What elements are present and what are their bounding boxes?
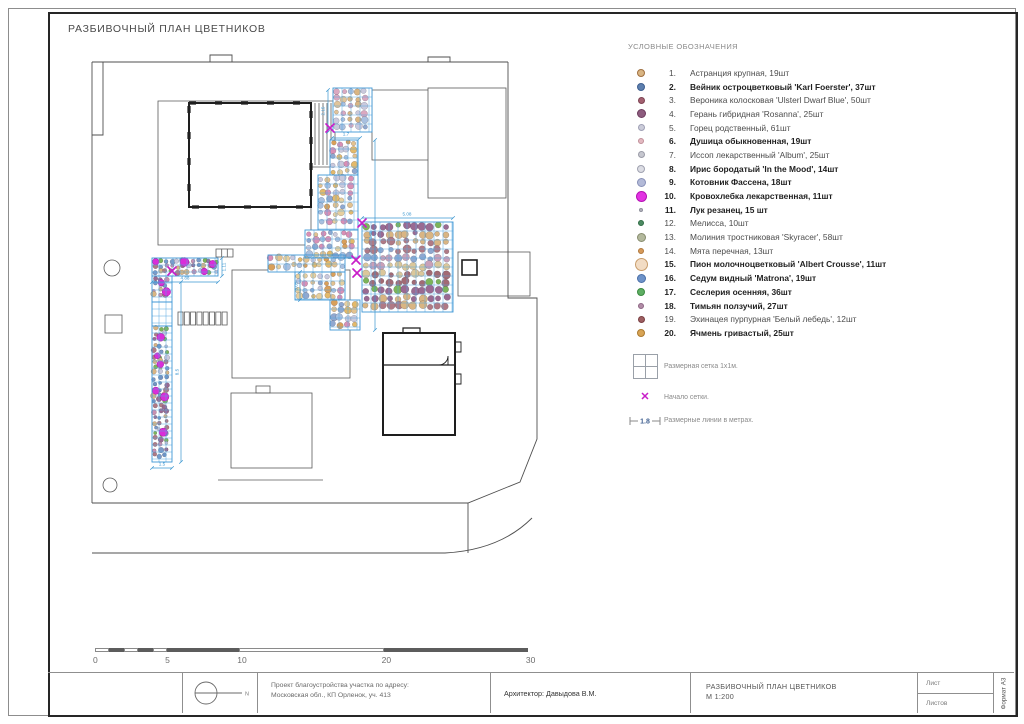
legend-item-label: Вероника колосковая 'Ulsterl Dwarf Blue'… — [686, 95, 1020, 105]
legend-items: 1. Астранция крупная, 19шт 2. Вейник ост… — [628, 66, 1020, 340]
page-title: РАЗБИВОЧНЫЙ ПЛАН ЦВЕТНИКОВ — [68, 23, 266, 35]
legend-item-number: 7. — [654, 150, 686, 160]
legend-item-number: 16. — [654, 273, 686, 283]
legend-header: УСЛОВНЫЕ ОБОЗНАЧЕНИЯ — [628, 42, 1020, 51]
plant-swatch — [628, 258, 654, 271]
scale-segment — [95, 648, 109, 652]
scale-segment — [138, 648, 152, 652]
legend-item: 8. Ирис бородатый 'In the Mood', 14шт — [628, 162, 1020, 176]
plant-swatch — [628, 248, 654, 254]
legend-item: 15. Пион молочноцветковый 'Albert Crouss… — [628, 258, 1020, 272]
legend-item-number: 3. — [654, 95, 686, 105]
legend-item-number: 11. — [654, 205, 686, 215]
scale-tick-label: 0 — [93, 655, 98, 665]
format-label: Формат А3 — [993, 673, 1014, 713]
scale-segment — [124, 648, 138, 652]
legend-item-label: Иссоп лекарственный 'Album', 25шт — [686, 150, 1020, 160]
plant-swatch — [628, 208, 654, 212]
origin-symbol-label: Начало сетки. — [664, 394, 709, 401]
svg-text:3.05: 3.05 — [294, 281, 299, 290]
svg-text:4.88: 4.88 — [181, 276, 190, 281]
legend-item-number: 13. — [654, 232, 686, 242]
scale-segment — [384, 648, 528, 652]
project-line2: Московская обл., КП Орленок, уч. 413 — [271, 691, 490, 701]
svg-text:8.5: 8.5 — [175, 368, 180, 375]
legend-item: 2. Вейник остроцветковый 'Karl Foerster'… — [628, 80, 1020, 94]
scale-tick-label: 5 — [165, 655, 170, 665]
plant-swatch — [628, 274, 654, 283]
scale-segment — [167, 648, 239, 652]
plant-swatch — [628, 138, 654, 144]
plant-swatch — [628, 303, 654, 309]
north-arrow: N — [182, 673, 257, 713]
legend-item-number: 9. — [654, 177, 686, 187]
legend-item-label: Лук резанец, 15 шт — [686, 205, 1020, 215]
dimension-symbol-label: Размерные линии в метрах. — [664, 417, 754, 424]
legend-item-number: 4. — [654, 109, 686, 119]
legend-item-number: 6. — [654, 136, 686, 146]
legend-item-number: 5. — [654, 123, 686, 133]
scale-segment — [239, 648, 383, 652]
grid-symbol-label: Размерная сетка 1х1м. — [664, 363, 738, 370]
plant-swatch — [628, 83, 654, 91]
svg-text:2.15: 2.15 — [321, 106, 326, 115]
plant-swatch — [628, 191, 654, 202]
plant-swatch — [628, 124, 654, 131]
architect: Архитектор: Давыдова В.М. — [490, 673, 690, 713]
sheet-scale: М 1:200 — [706, 692, 917, 702]
legend: УСЛОВНЫЕ ОБОЗНАЧЕНИЯ 1. Астранция крупна… — [628, 42, 1020, 439]
legend-item-label: Мелисса, 10шт — [686, 218, 1020, 228]
legend-item: 17. Сеслерия осенняя, 36шт — [628, 285, 1020, 299]
legend-item-label: Котовник Фассена, 18шт — [686, 177, 1020, 187]
plant-swatch — [628, 69, 654, 77]
legend-item: 3. Вероника колосковая 'Ulsterl Dwarf Bl… — [628, 93, 1020, 107]
legend-item: 20. Ячмень гривастый, 25шт — [628, 326, 1020, 340]
legend-item: 14. Мята перечная, 13шт — [628, 244, 1020, 258]
scale-segment — [109, 648, 123, 652]
dimension-line-icon: 1.8 — [628, 414, 662, 428]
scale-segment — [153, 648, 167, 652]
legend-item: 18. Тимьян ползучий, 27шт — [628, 299, 1020, 313]
legend-item-label: Седум видный 'Matrona', 19шт — [686, 273, 1020, 283]
legend-item-number: 8. — [654, 164, 686, 174]
flower-beds — [150, 88, 453, 462]
legend-item-number: 14. — [654, 246, 686, 256]
legend-item: 1. Астранция крупная, 19шт — [628, 66, 1020, 80]
svg-text:8.06: 8.06 — [368, 230, 373, 239]
plant-swatch — [628, 109, 654, 118]
legend-item-label: Кровохлебка лекарственная, 11шт — [686, 191, 1020, 201]
legend-item-label: Ячмень гривастый, 25шт — [686, 328, 1020, 338]
plant-swatch — [628, 288, 654, 296]
legend-item: 7. Иссоп лекарственный 'Album', 25шт — [628, 148, 1020, 162]
legend-item-number: 12. — [654, 218, 686, 228]
legend-item-label: Горец родственный, 61шт — [686, 123, 1020, 133]
svg-text:5.08: 5.08 — [403, 212, 412, 217]
legend-item-label: Мята перечная, 13шт — [686, 246, 1020, 256]
legend-item-label: Вейник остроцветковый 'Karl Foerster', 3… — [686, 82, 1020, 92]
svg-text:1.8: 1.8 — [640, 418, 650, 425]
plant-swatch — [628, 316, 654, 323]
grid-origin-icon: ✕ — [628, 392, 662, 403]
legend-item-number: 17. — [654, 287, 686, 297]
svg-text:1.5: 1.5 — [159, 462, 166, 467]
legend-item-label: Тимьян ползучий, 27шт — [686, 301, 1020, 311]
plant-swatch — [628, 178, 654, 187]
legend-item: 9. Котовник Фассена, 18шт — [628, 176, 1020, 190]
legend-item-label: Сеслерия осенняя, 36шт — [686, 287, 1020, 297]
scale-tick-label: 10 — [237, 655, 246, 665]
legend-item: 16. Седум видный 'Matrona', 19шт — [628, 271, 1020, 285]
legend-symbol-origin: ✕ Начало сетки. — [628, 392, 1020, 403]
plant-swatch — [628, 165, 654, 173]
legend-item-number: 10. — [654, 191, 686, 201]
sheets-label: Листов — [917, 693, 993, 713]
legend-item-number: 20. — [654, 328, 686, 338]
scale-tick-label: 20 — [382, 655, 391, 665]
legend-item-number: 1. — [654, 68, 686, 78]
sheet-label: Лист — [917, 673, 993, 693]
svg-text:1.7: 1.7 — [343, 132, 350, 137]
legend-item-label: Ирис бородатый 'In the Mood', 14шт — [686, 164, 1020, 174]
legend-symbol-dimension: 1.8 Размерные линии в метрах. — [628, 414, 1020, 428]
plant-swatch — [628, 151, 654, 158]
legend-item: 12. Мелисса, 10шт — [628, 217, 1020, 231]
legend-item-number: 18. — [654, 301, 686, 311]
legend-item-label: Молиния тростниковая 'Skyracer', 58шт — [686, 232, 1020, 242]
plant-swatch — [628, 233, 654, 242]
legend-item-label: Пион молочноцветковый 'Albert Crousse', … — [686, 259, 1020, 269]
sheet-title: РАЗБИВОЧНЫЙ ПЛАН ЦВЕТНИКОВ М 1:200 — [690, 673, 917, 713]
legend-item-label: Астранция крупная, 19шт — [686, 68, 1020, 78]
sheet-title-text: РАЗБИВОЧНЫЙ ПЛАН ЦВЕТНИКОВ — [706, 682, 917, 692]
grid-icon — [628, 354, 662, 379]
legend-item-label: Эхинацея пурпурная 'Белый лебедь', 12шт — [686, 314, 1020, 324]
svg-text:1.11: 1.11 — [222, 262, 227, 271]
legend-item-label: Герань гибридная 'Rosanna', 25шт — [686, 109, 1020, 119]
legend-item-number: 15. — [654, 259, 686, 269]
title-block: N Проект благоустройства участка по адре… — [48, 672, 1014, 713]
legend-item: 6. Душица обыкновенная, 19шт — [628, 134, 1020, 148]
legend-item: 5. Горец родственный, 61шт — [628, 121, 1020, 135]
legend-item-number: 19. — [654, 314, 686, 324]
legend-item-label: Душица обыкновенная, 19шт — [686, 136, 1020, 146]
legend-item: 10. Кровохлебка лекарственная, 11шт — [628, 189, 1020, 203]
site-plan: 2.151.78.065.084.881.118.51.53.05 — [60, 48, 625, 568]
svg-text:N: N — [245, 692, 249, 698]
legend-item: 19. Эхинацея пурпурная 'Белый лебедь', 1… — [628, 312, 1020, 326]
legend-item: 13. Молиния тростниковая 'Skyracer', 58ш… — [628, 230, 1020, 244]
legend-item: 11. Лук резанец, 15 шт — [628, 203, 1020, 217]
plant-swatch — [628, 97, 654, 104]
page: { "page": { "title": "РАЗБИВОЧНЫЙ ПЛАН Ц… — [0, 0, 1024, 724]
project-address: Проект благоустройства участка по адресу… — [257, 673, 490, 713]
legend-symbols: Размерная сетка 1х1м. ✕ Начало сетки. 1.… — [628, 354, 1020, 428]
legend-symbol-grid: Размерная сетка 1х1м. — [628, 354, 1020, 379]
plant-swatch — [628, 220, 654, 226]
scale-tick-label: 30 — [526, 655, 535, 665]
legend-item: 4. Герань гибридная 'Rosanna', 25шт — [628, 107, 1020, 121]
legend-item-number: 2. — [654, 82, 686, 92]
project-line1: Проект благоустройства участка по адресу… — [271, 681, 490, 691]
plant-swatch — [628, 329, 654, 337]
